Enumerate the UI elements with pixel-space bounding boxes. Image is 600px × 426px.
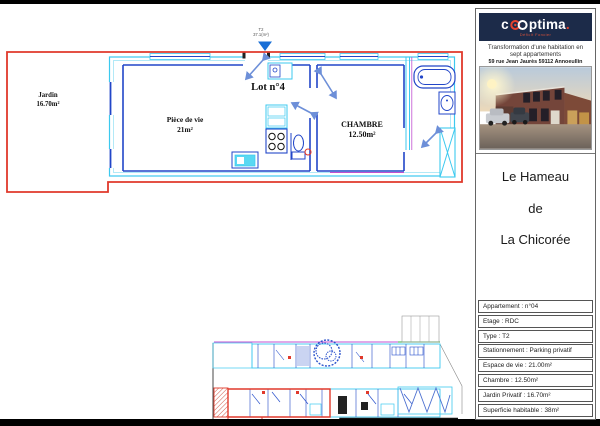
info-card: c ptima . Déficit Foncier Transformation…	[475, 8, 596, 420]
info-row-superficie: Superficie habitable : 38m²	[478, 404, 593, 417]
bottom-black-bar	[0, 419, 600, 426]
info-row-stationnement: Stationnement : Parking privatif	[478, 344, 593, 357]
building-photo	[479, 66, 592, 150]
lot-size-marker: T2 37.1(m²)	[243, 27, 279, 37]
brand-period: .	[566, 18, 570, 31]
info-row-type: Type : T2	[478, 330, 593, 343]
project-title-line2: de	[476, 200, 595, 218]
chambre-label: CHAMBRE 12.50m²	[325, 120, 399, 140]
top-black-bar	[0, 0, 600, 4]
project-title-line3: La Chicorée	[476, 231, 595, 249]
main-plan	[7, 42, 462, 193]
site-plan	[213, 316, 462, 423]
project-title-box: Le Hameau de La Chicorée	[476, 153, 595, 298]
project-subtitle: Transformation d'une habitation en sept …	[482, 44, 589, 58]
apartment-info-table: Appartement : n°04 Etage : RDC Type : T2…	[478, 300, 593, 418]
jardin-label: Jardin 16.70m²	[20, 92, 76, 109]
project-title-line1: Le Hameau	[476, 168, 595, 186]
brand-wordmark: c ptima .	[501, 17, 570, 31]
lot-number-label: Lot n°4	[238, 82, 298, 93]
piece-de-vie-label: Pièce de vie 21m²	[150, 115, 220, 134]
cooptima-logo: c ptima . Déficit Foncier	[479, 13, 592, 41]
info-row-espace-de-vie: Espace de vie : 21.00m²	[478, 359, 593, 372]
marker-area: 37.1(m²)	[243, 32, 279, 37]
building-photo-art	[480, 67, 591, 149]
info-row-chambre: Chambre : 12.50m²	[478, 374, 593, 387]
page: { "plan": { "marker": { "line1": "T2", "…	[0, 0, 600, 426]
brand-tagline: Déficit Foncier	[520, 32, 552, 37]
info-row-etage: Etage : RDC	[478, 315, 593, 328]
info-row-jardin: Jardin Privatif : 16.70m²	[478, 389, 593, 402]
info-row-appartement: Appartement : n°04	[478, 300, 593, 313]
project-address: 59 rue Jean Jaurès 59112 Annoeullin	[479, 59, 592, 65]
cooptima-logo-mark-icon	[510, 19, 529, 31]
